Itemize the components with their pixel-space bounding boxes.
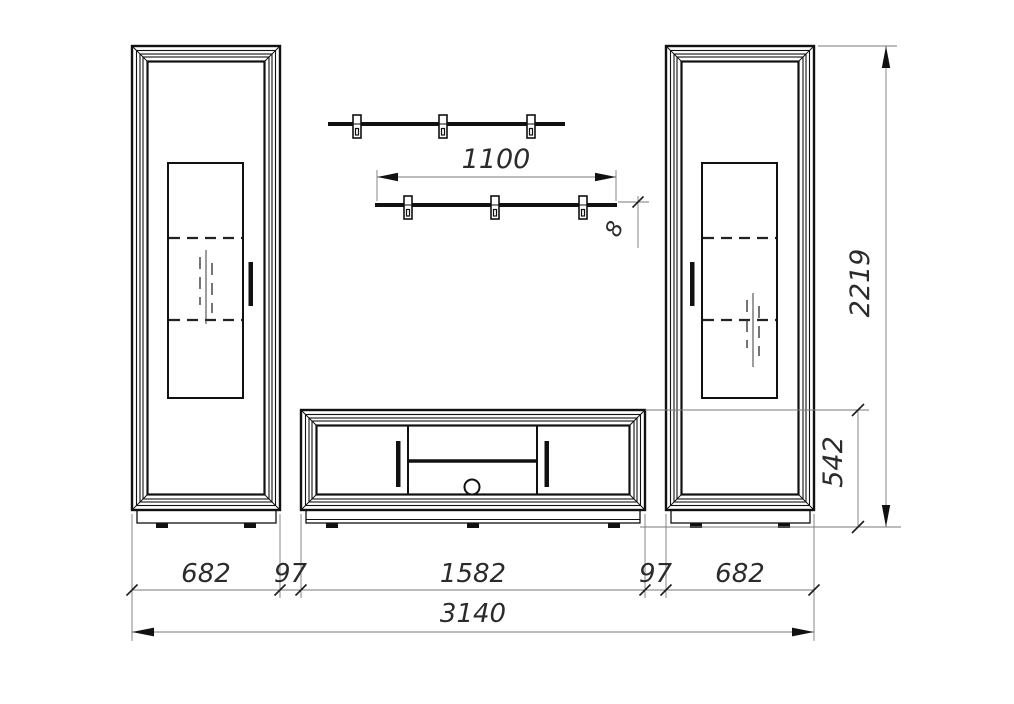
dimension-label-tv-stand-width: 1582 bbox=[440, 559, 506, 589]
dimension-label-total-height: 2219 bbox=[845, 249, 876, 318]
dimension-total-height: 2219 bbox=[640, 46, 901, 527]
left-cabinet-handle bbox=[249, 262, 254, 306]
tv-stand-foot bbox=[326, 523, 338, 528]
right-cabinet-handle bbox=[690, 262, 695, 306]
dimension-total-width: 3140 bbox=[132, 599, 814, 636]
shelf-bracket bbox=[527, 115, 535, 138]
dimension-label-shelf-length: 1100 bbox=[462, 144, 531, 175]
glass-shine-marks bbox=[200, 250, 212, 324]
shelf-bracket bbox=[579, 196, 587, 219]
glass-shine-marks bbox=[747, 293, 759, 367]
right-cabinet bbox=[666, 46, 814, 528]
arrowhead-right bbox=[595, 173, 616, 181]
tv-stand-foot bbox=[608, 523, 620, 528]
shelf-bracket bbox=[491, 196, 499, 219]
cabinet-foot bbox=[156, 523, 168, 528]
arrowhead-up bbox=[882, 46, 890, 68]
dimension-label-left-gap: 97 bbox=[274, 559, 308, 589]
dimension-tv-stand-height: 542 bbox=[645, 404, 869, 533]
cabinet-foot bbox=[244, 523, 256, 528]
dimension-label-right-cabinet-width: 682 bbox=[715, 559, 765, 589]
left-cabinet-plinth bbox=[137, 510, 276, 528]
shelf-bracket bbox=[353, 115, 361, 138]
dimension-label-shelf-thickness: 8 bbox=[601, 218, 630, 241]
tv-stand bbox=[301, 410, 645, 528]
arrowhead-left bbox=[132, 628, 154, 637]
tv-stand-knob bbox=[465, 480, 480, 495]
tv-stand-left-handle bbox=[396, 441, 401, 487]
right-cabinet-frame bbox=[666, 46, 814, 510]
arrowhead-left bbox=[377, 173, 398, 181]
right-cabinet-plinth bbox=[671, 510, 810, 528]
tv-stand-right-handle bbox=[545, 441, 550, 487]
tv-stand-plinth bbox=[306, 510, 640, 528]
left-cabinet bbox=[132, 46, 280, 528]
upper-wall-shelf bbox=[328, 115, 565, 138]
dimension-label-left-cabinet-width: 682 bbox=[181, 559, 231, 589]
dimension-label-total-width: 3140 bbox=[440, 599, 506, 629]
shelf-bracket bbox=[439, 115, 447, 138]
arrowhead-right bbox=[792, 628, 814, 637]
dimension-label-tv-stand-height: 542 bbox=[818, 436, 849, 488]
arrowhead-down bbox=[882, 505, 890, 527]
dimension-label-right-gap: 97 bbox=[639, 559, 673, 589]
furniture-dimension-drawing: 1100 8 2219 542 6 bbox=[0, 0, 1014, 704]
lower-wall-shelf bbox=[375, 196, 617, 219]
left-cabinet-glass-door bbox=[168, 163, 243, 398]
tv-stand-foot bbox=[467, 523, 479, 528]
shelf-bracket bbox=[404, 196, 412, 219]
right-cabinet-glass-door bbox=[702, 163, 777, 398]
dimension-shelf-length: 1100 bbox=[377, 144, 616, 201]
drawing-canvas: 1100 8 2219 542 6 bbox=[0, 0, 1014, 704]
